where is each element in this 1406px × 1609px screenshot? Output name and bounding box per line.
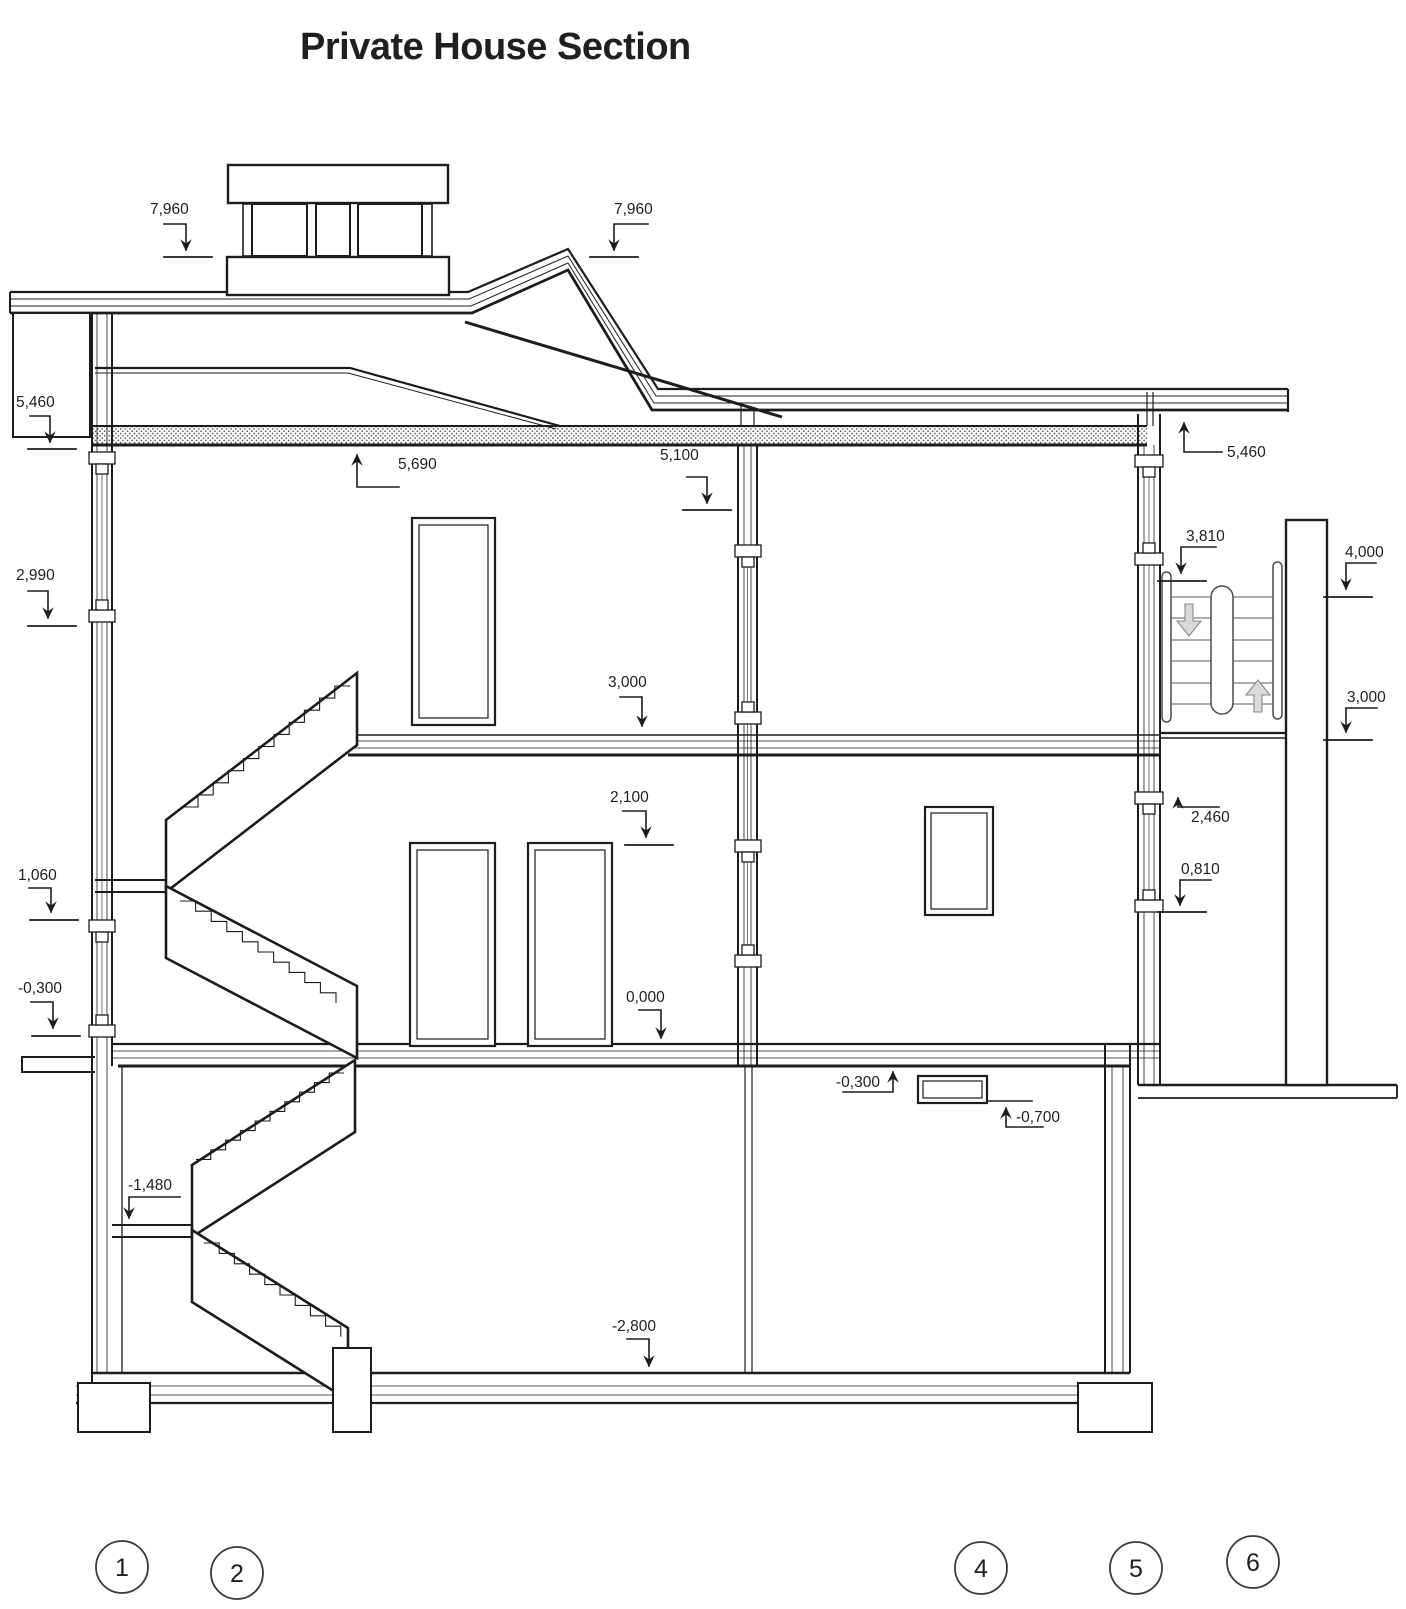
elevation-marker-entry-mid: 2,460 — [1178, 798, 1230, 826]
elevation-marker-window-head: 2,100 — [610, 789, 673, 845]
svg-text:-0,700: -0,700 — [1016, 1109, 1060, 1126]
svg-text:7,960: 7,960 — [150, 201, 189, 218]
drawing-canvas: Private House Section — [0, 0, 1406, 1609]
svg-text:5,690: 5,690 — [398, 456, 437, 473]
grid-bubble-4: 4 — [955, 1542, 1007, 1594]
basement-right-wall — [1105, 1044, 1130, 1373]
window-ground-left — [410, 843, 495, 1046]
svg-text:-2,800: -2,800 — [612, 1318, 656, 1335]
elevation-marker-ceiling-left: 5,690 — [357, 455, 437, 487]
elevation-marker-entry-floor: 3,000 — [1324, 689, 1386, 740]
grid-bubbles: 1 2 4 5 6 — [96, 1536, 1279, 1599]
up-arrow-icon — [1246, 680, 1270, 712]
elevation-marker-basement-window: -0,700 — [987, 1101, 1060, 1127]
entrance-porch — [1138, 733, 1397, 1098]
svg-text:5,100: 5,100 — [660, 447, 699, 464]
left-porch-slab — [22, 1057, 95, 1072]
elevation-marker-wall-left: 2,990 — [16, 567, 76, 626]
entrance-stair — [1162, 562, 1282, 722]
svg-text:0,810: 0,810 — [1181, 861, 1220, 878]
stair-flight-2-to-landing — [166, 673, 357, 892]
svg-text:2,990: 2,990 — [16, 567, 55, 584]
grid-bubble-1: 1 — [96, 1541, 148, 1593]
elevation-marker-window-sill-right: 0,810 — [1158, 861, 1220, 912]
section-drawing: Private House Section — [0, 0, 1406, 1609]
stair-center-handrail — [1211, 586, 1233, 714]
foundation-block-left — [78, 1383, 150, 1432]
grid-bubble-2: 2 — [211, 1547, 263, 1599]
svg-text:0,000: 0,000 — [626, 989, 665, 1006]
elevation-marker-floor2-mid: 3,000 — [608, 674, 647, 726]
stair-railing-right — [1273, 562, 1282, 719]
svg-text:-1,480: -1,480 — [128, 1177, 172, 1194]
window-right-room — [925, 807, 993, 915]
svg-text:2,460: 2,460 — [1191, 809, 1230, 826]
basement-floor-slab — [76, 1373, 1152, 1403]
elevation-marker-ground-floor: 0,000 — [626, 989, 665, 1038]
chimney-flue — [252, 204, 307, 256]
svg-text:3,810: 3,810 — [1186, 528, 1225, 545]
stair-mid-landing — [95, 880, 166, 892]
grid-bubble-5: 5 — [1110, 1542, 1162, 1594]
elevation-marker-basement-floor: -2,800 — [612, 1318, 656, 1366]
eave-parapet — [13, 313, 90, 437]
windows — [410, 518, 993, 1103]
svg-text:7,960: 7,960 — [614, 201, 653, 218]
svg-text:2,100: 2,100 — [610, 789, 649, 806]
elevation-marker-chimney-right: 7,960 — [590, 201, 653, 257]
svg-text:5,460: 5,460 — [1227, 444, 1266, 461]
down-arrow-icon — [1177, 604, 1201, 636]
ground-floor-slab — [112, 1044, 1159, 1066]
svg-text:3,000: 3,000 — [1347, 689, 1386, 706]
elevation-marker-entry-top: 4,000 — [1324, 544, 1384, 597]
elevation-marker-stair-landing-left: 1,060 — [18, 867, 78, 920]
svg-text:5,460: 5,460 — [16, 394, 55, 411]
entrance-side-wall — [1286, 520, 1327, 1085]
window-second-floor — [412, 518, 495, 725]
elevation-marker-porch-left: -0,300 — [18, 980, 80, 1036]
svg-text:-0,300: -0,300 — [18, 980, 62, 997]
page-title: Private House Section — [300, 26, 691, 68]
interior-wall — [738, 445, 757, 1373]
attic-slab — [92, 426, 1147, 445]
elevation-marker-basement-ceiling: -0,300 — [836, 1072, 893, 1092]
foundation-block-right — [1078, 1383, 1152, 1432]
svg-text:1,060: 1,060 — [18, 867, 57, 884]
chimney-flue — [358, 204, 422, 256]
basement-stair-landing — [112, 1225, 192, 1237]
stair-flight-landing-to-ground — [166, 886, 357, 1058]
elevation-marker-chimney-left: 7,960 — [150, 201, 212, 257]
right-exterior-wall — [1138, 414, 1160, 1085]
window-ground-mid — [528, 843, 612, 1046]
foundation-pier-center — [333, 1348, 371, 1432]
svg-text:4,000: 4,000 — [1345, 544, 1384, 561]
chimney-flue — [316, 204, 350, 256]
elevation-marker-attic-right: 5,460 — [1184, 423, 1266, 461]
chimney — [227, 165, 449, 295]
svg-text:6: 6 — [1246, 1549, 1260, 1577]
elevation-marker-ceiling-door: 5,100 — [660, 447, 731, 510]
stair-flight-ground-to-basement-landing — [192, 1060, 355, 1237]
foundation-blocks — [78, 1348, 1152, 1432]
svg-text:5: 5 — [1129, 1555, 1143, 1583]
stair-railing-left — [1162, 572, 1171, 722]
grid-bubble-6: 6 — [1227, 1536, 1279, 1588]
left-exterior-wall — [92, 313, 122, 1403]
roof — [10, 249, 1288, 412]
window-basement — [918, 1076, 987, 1103]
svg-text:-0,300: -0,300 — [836, 1074, 880, 1091]
svg-text:3,000: 3,000 — [608, 674, 647, 691]
elevation-marker-basement-landing: -1,480 — [128, 1177, 180, 1218]
svg-text:2: 2 — [230, 1560, 244, 1588]
second-floor-slab — [348, 735, 1159, 755]
svg-text:4: 4 — [974, 1555, 988, 1583]
svg-text:1: 1 — [115, 1554, 129, 1582]
stair-flight-landing-to-basement — [192, 1230, 348, 1400]
